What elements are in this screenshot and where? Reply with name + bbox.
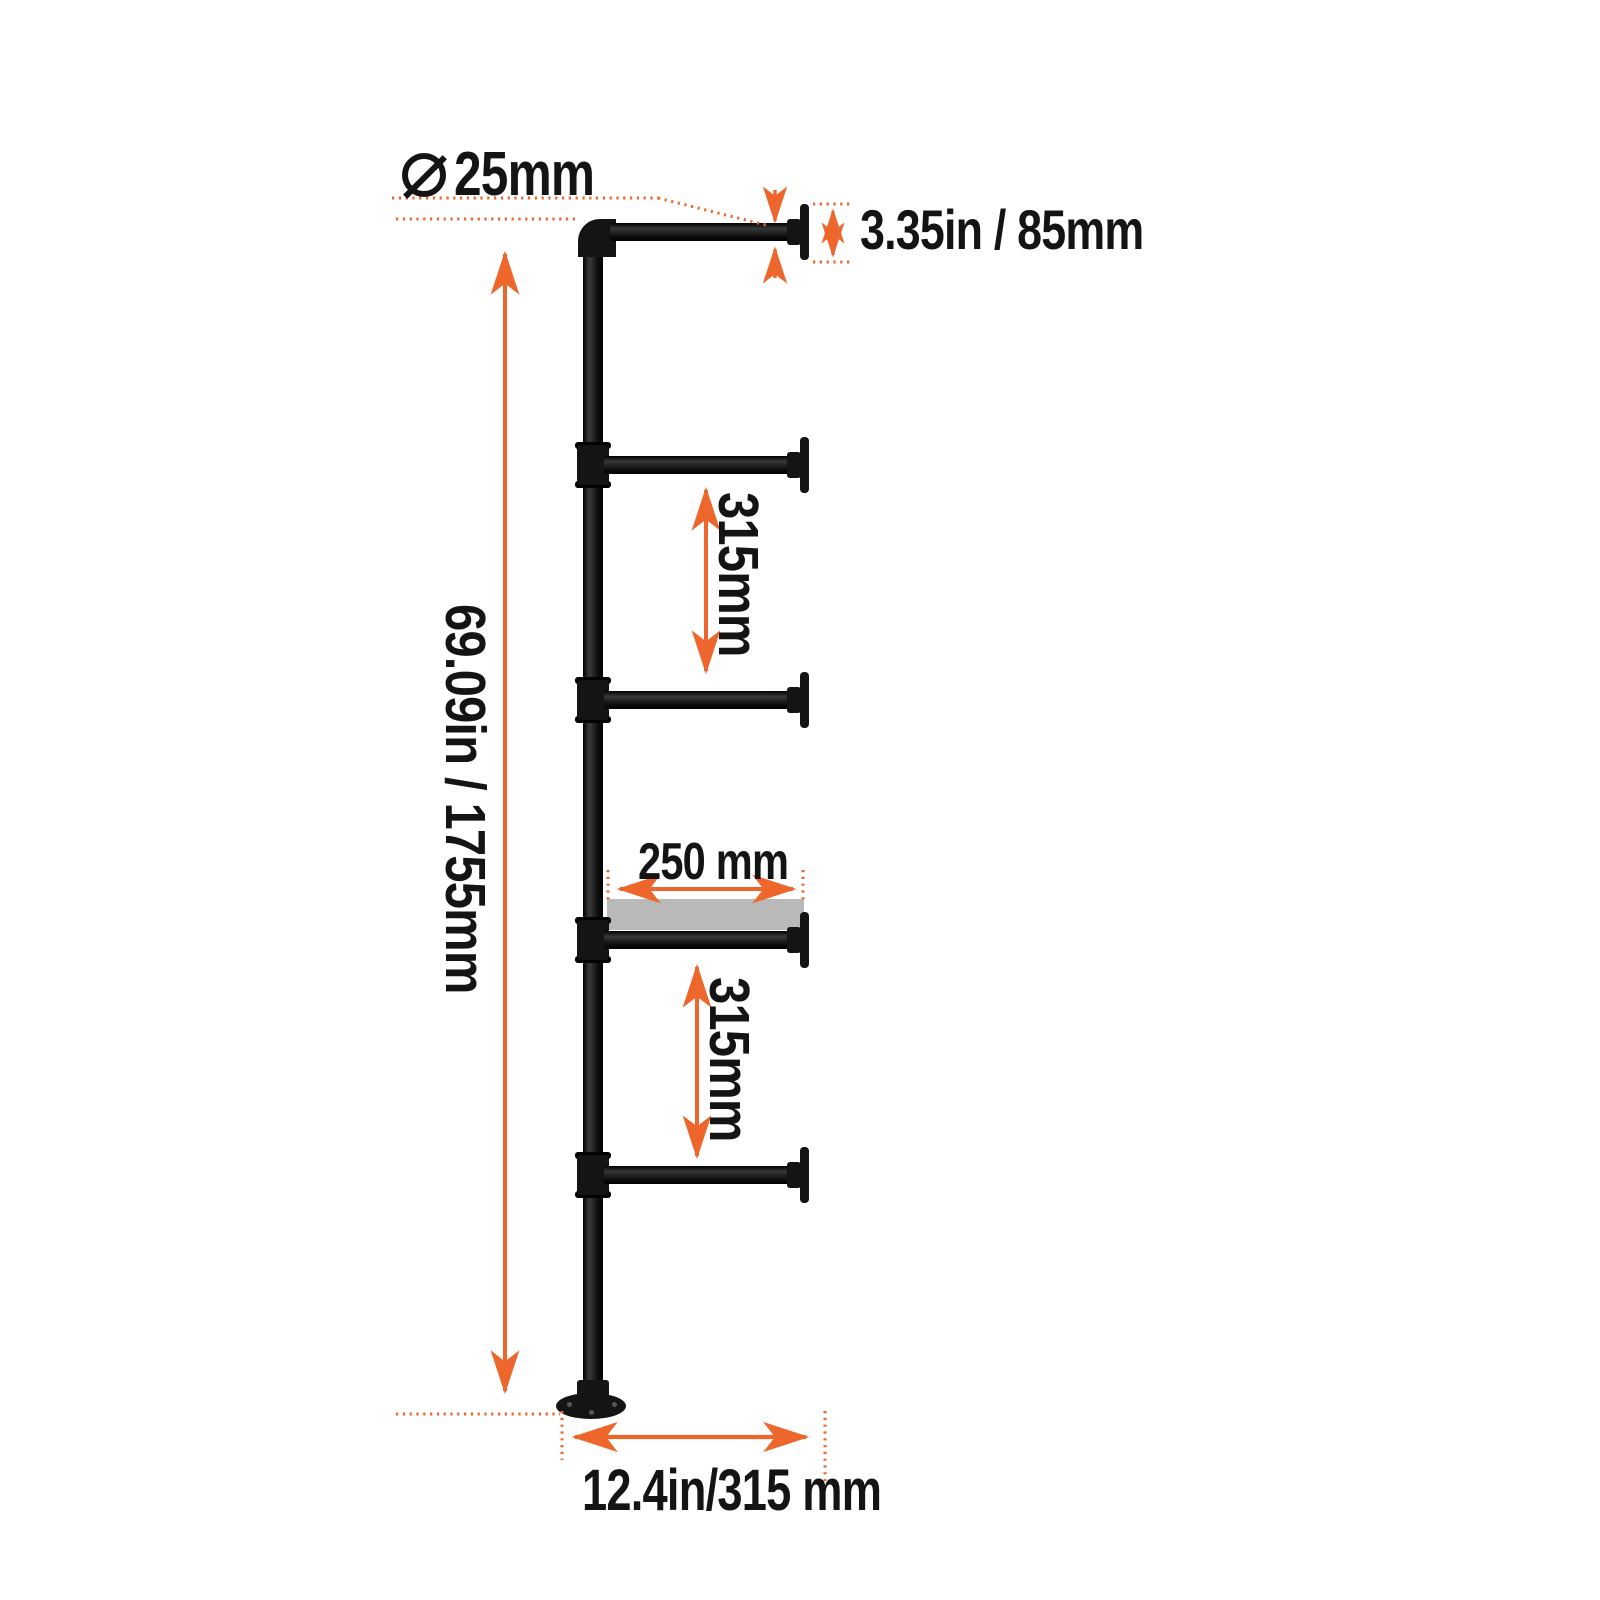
pipe-diameter-value: 25mm [454, 144, 594, 206]
shelf-depth-value: 250 mm [638, 836, 788, 888]
wall-flange-label: 3.35in / 85mm [860, 202, 1214, 258]
total-height-label: 69.09in / 1755mm [436, 604, 493, 994]
shelf-depth-label: 250 mm [638, 836, 826, 888]
diameter-icon [402, 153, 446, 197]
leader-diameter-diagonal [658, 198, 770, 226]
pipe-diameter-label: 25mm [402, 144, 629, 206]
dimension-diagram: 25mm 3.35in / 85mm 315mm 250 mm 315mm 69… [0, 0, 1600, 1600]
base-depth-label: 12.4in/315 mm [582, 1462, 966, 1520]
base-depth-value: 12.4in/315 mm [582, 1462, 881, 1520]
lower-spacing-label: 315mm [700, 977, 757, 1142]
wall-flange-value: 3.35in / 85mm [860, 202, 1143, 258]
dimension-arrows-overlay [0, 0, 1600, 1600]
upper-spacing-label: 315mm [709, 492, 766, 657]
